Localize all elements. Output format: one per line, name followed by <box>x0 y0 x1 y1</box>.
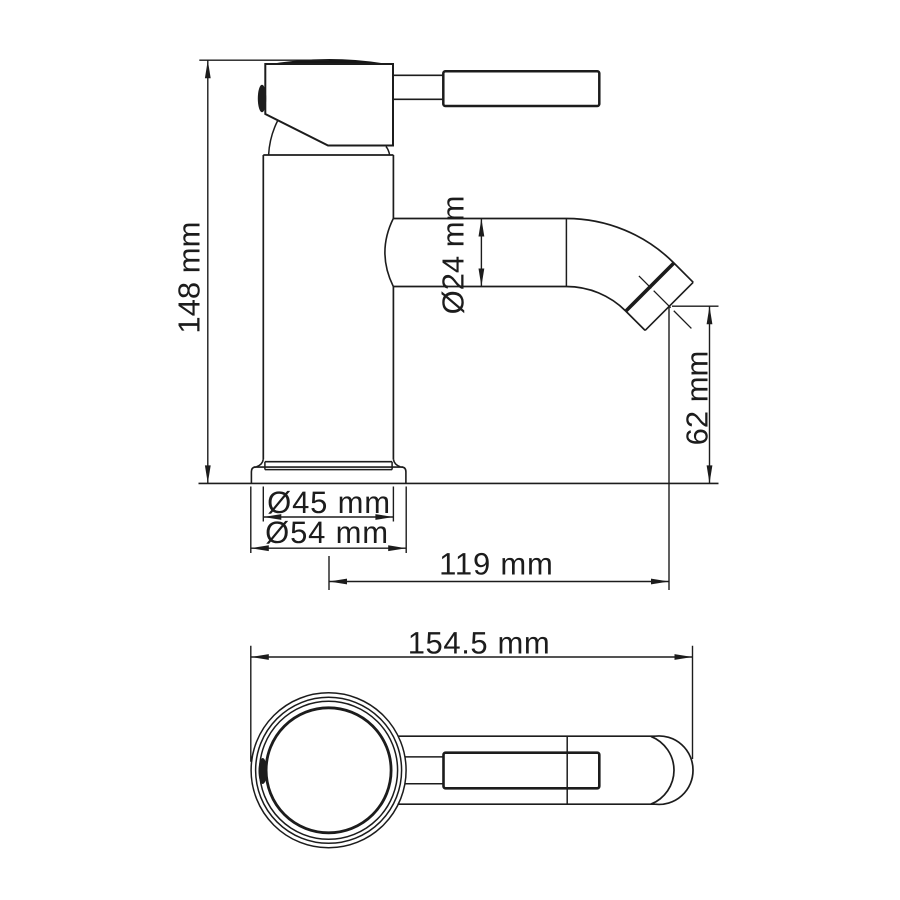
svg-text:Ø24 mm: Ø24 mm <box>435 196 470 315</box>
svg-text:154.5 mm: 154.5 mm <box>408 625 551 660</box>
svg-text:119 mm: 119 mm <box>439 546 554 581</box>
svg-text:Ø54 mm: Ø54 mm <box>265 515 389 550</box>
svg-text:62 mm: 62 mm <box>680 351 715 446</box>
svg-text:148 mm: 148 mm <box>171 222 206 334</box>
